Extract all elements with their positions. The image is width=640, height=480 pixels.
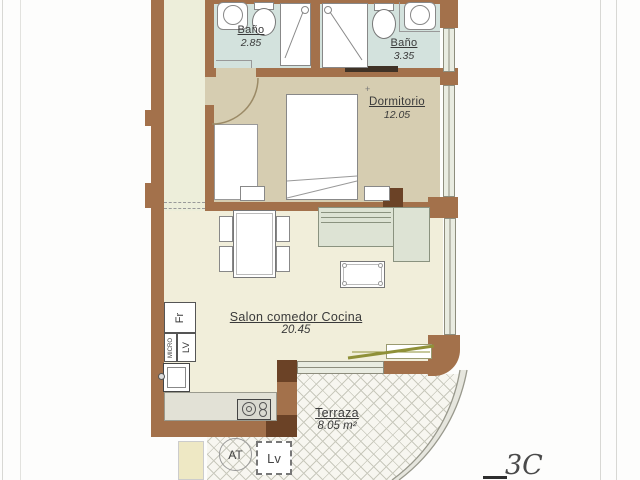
wall-pier-left-upper [145, 110, 151, 126]
bathroom2-sink-basin [410, 5, 430, 25]
hall-floor [164, 0, 205, 211]
stove [237, 399, 271, 420]
bathroom2-label: Baño 3.35 [374, 37, 434, 62]
terrace-sliding-door-panel [386, 344, 432, 359]
bedroom-name: Dormitorio [351, 96, 443, 109]
bathroom1-sink-basin [223, 5, 243, 25]
bathroom2-counter-edge-h [399, 31, 440, 32]
water-heater: AT [219, 438, 252, 471]
terrace-label: Terraza 8.05 m² [296, 406, 378, 434]
survey-mark: + [365, 84, 370, 94]
fridge: Fr [164, 302, 196, 333]
dining-chair-bottom-right [276, 246, 290, 272]
stove-burner-large [242, 402, 256, 416]
living-room-label: Salon comedor Cocina 20.45 [211, 310, 381, 338]
stove-burner-small-bottom [259, 409, 267, 417]
bathroom1-shower [280, 3, 311, 66]
open-passage-dashed-line-top [164, 202, 205, 203]
coffee-table [340, 261, 385, 288]
microwave-label: MICRO [168, 338, 174, 358]
living-room-area: 20.45 [211, 324, 381, 337]
plan-code: 3C [505, 450, 543, 480]
dining-chair-top-left [219, 216, 233, 242]
page-edge-line-left-outer [2, 0, 3, 480]
wall-pier-left-lower [145, 183, 151, 208]
stove-burner-inner [246, 406, 252, 412]
bedroom-window [443, 85, 455, 197]
kitchen-sink-faucet [158, 373, 165, 380]
wall-pier-right [428, 197, 458, 218]
dishwasher-label: LV [181, 342, 192, 353]
bathroom-divider-wall [311, 0, 320, 68]
page-edge-line-right-outer [616, 0, 617, 480]
water-heater-label: AT [228, 448, 242, 462]
page-edge-line-left-inner [20, 0, 21, 480]
dining-table-inner-edge [236, 213, 273, 275]
sofa-backrest-lines [321, 212, 391, 225]
coffee-table-inner-edge [343, 264, 382, 285]
kitchen-sink [163, 363, 190, 392]
floor-plan-page: Fr MICRO LV AT Lv [0, 0, 640, 480]
page-edge-line-right-inner [600, 0, 601, 480]
terrace-area: 8.05 m² [296, 420, 378, 433]
dining-table [233, 210, 276, 278]
coffee-table-leg [378, 263, 383, 268]
terrace-top-wall [382, 361, 432, 374]
bathroom1-label: Baño 2.85 [221, 24, 281, 49]
bedroom-door-opening [205, 77, 214, 105]
outer-wall-corner-curved [428, 335, 460, 376]
terrace-door-threshold [297, 361, 384, 374]
pen-mark [483, 476, 507, 479]
dining-chair-top-right [276, 216, 290, 242]
bed [286, 94, 358, 200]
sofa-chaise [393, 207, 430, 262]
nightstand-right [364, 186, 390, 201]
kitchen-terrace-wall-pier [277, 360, 297, 382]
bathroom1-door-opening [216, 68, 256, 77]
dishwasher: LV [177, 333, 196, 362]
coffee-table-leg [342, 263, 347, 268]
bathroom2-window [443, 28, 455, 72]
fridge-label: Fr [174, 312, 186, 322]
washing-machine-label: Lv [267, 451, 281, 466]
bedroom-area: 12.05 [351, 109, 443, 121]
coffee-table-leg [342, 281, 347, 286]
bedroom-label: Dormitorio 12.05 [351, 96, 443, 121]
bathroom1-area: 2.85 [221, 37, 281, 49]
open-passage-dashed-line-bottom [164, 208, 205, 209]
exterior-pillar [178, 441, 204, 480]
outer-wall-right-mid [440, 72, 458, 85]
bathroom2-toilet [372, 9, 396, 39]
kitchen-sink-basin [167, 367, 186, 388]
bathroom-wall-segment-a [205, 68, 216, 77]
bathroom2-area: 3.35 [374, 50, 434, 62]
bathroom2-shower [322, 3, 368, 68]
outer-wall-right-top [440, 0, 458, 28]
living-room-name: Salon comedor Cocina [211, 310, 381, 324]
sofa-main [318, 207, 394, 247]
terrace-name: Terraza [296, 406, 378, 420]
bathroom2-counter-edge-v [399, 2, 400, 31]
washing-machine: Lv [256, 441, 292, 475]
bedroom-left-wall [205, 105, 214, 211]
dining-chair-bottom-left [219, 246, 233, 272]
bathroom1-door-line-v [251, 60, 252, 68]
bathroom1-left-wall [205, 0, 214, 68]
microwave: MICRO [164, 333, 177, 362]
nightstand-left [240, 186, 265, 201]
living-room-window [444, 218, 456, 335]
bathroom1-door-line-h [216, 60, 252, 61]
bathroom1-name: Baño [221, 24, 281, 37]
bathroom2-name: Baño [374, 37, 434, 50]
coffee-table-leg [378, 281, 383, 286]
